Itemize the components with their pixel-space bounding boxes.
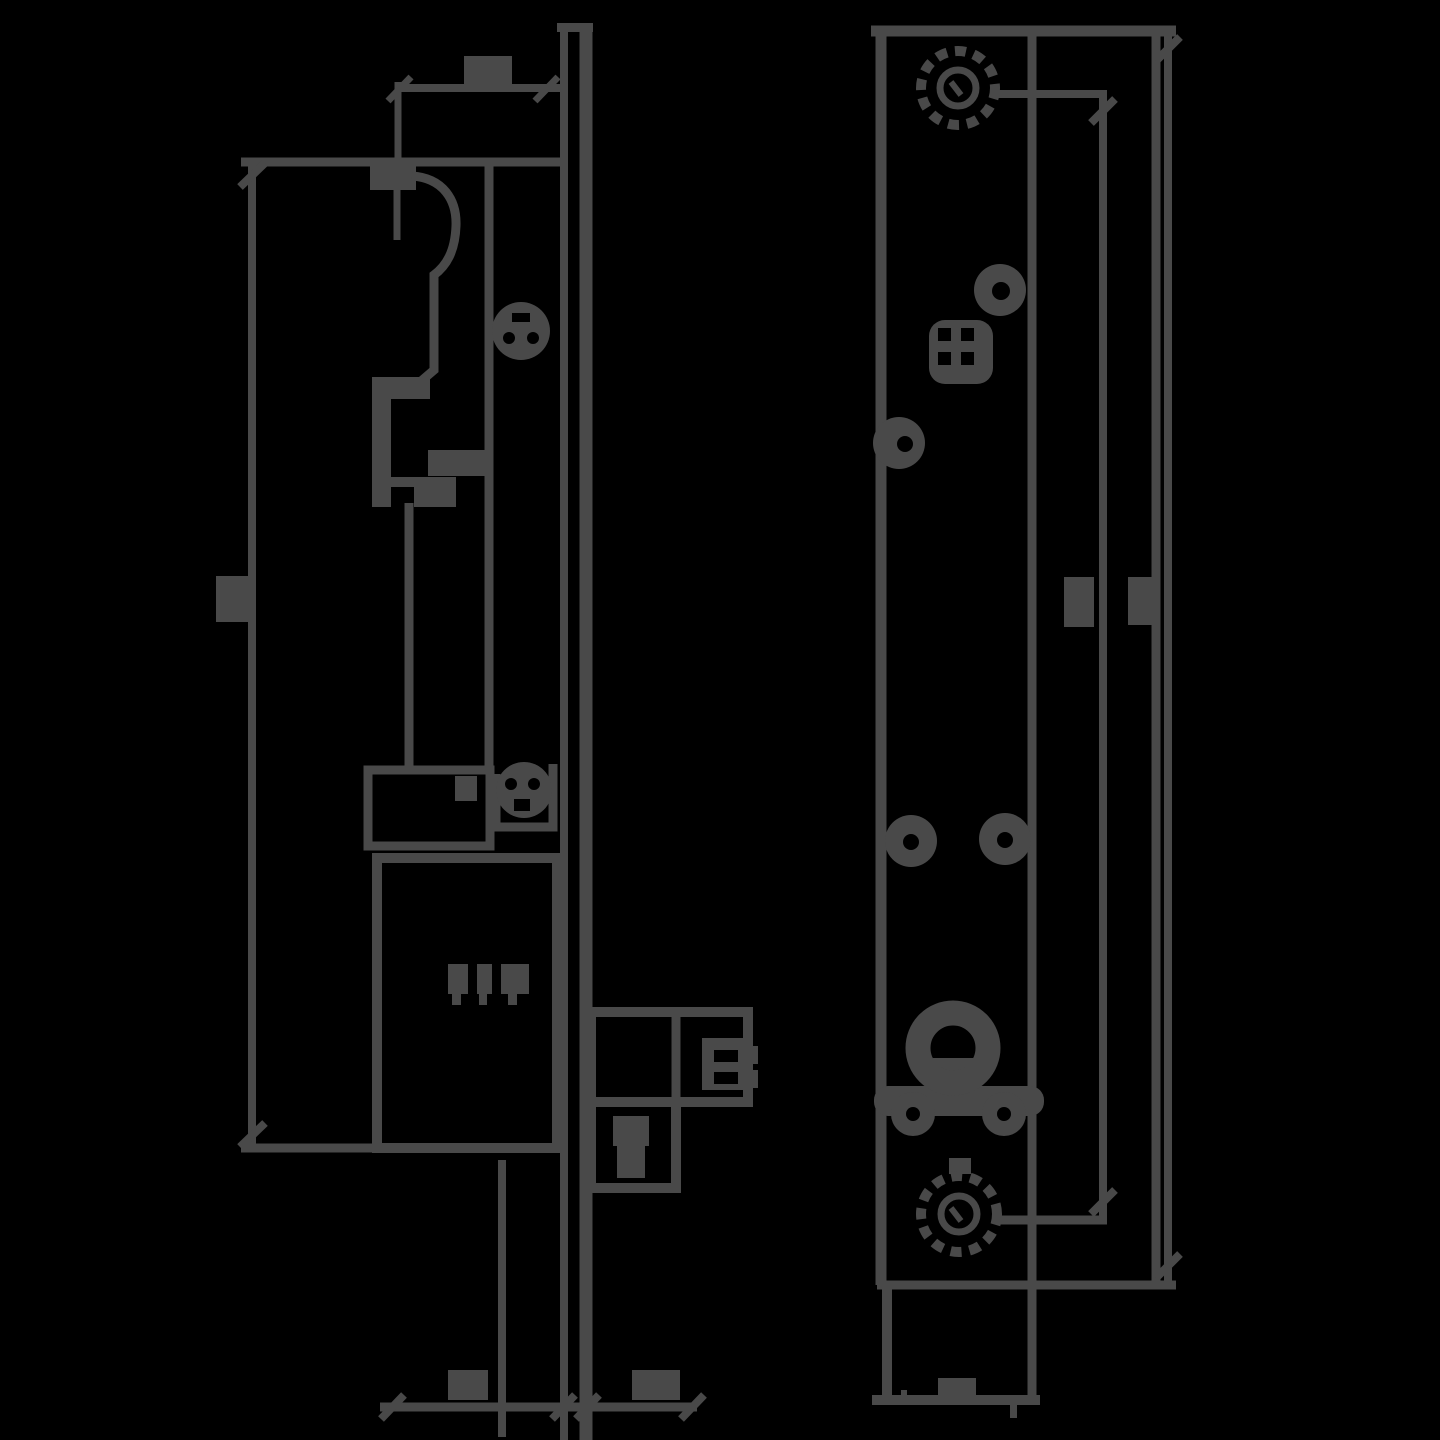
terminal-slot-1 xyxy=(714,1050,738,1062)
marking-glyph-2 xyxy=(477,964,492,994)
side-screw-top-eye-left xyxy=(503,332,515,344)
marking-glyph-1 xyxy=(448,964,468,994)
marking-glyph-2-stem xyxy=(479,994,487,1005)
strike-lock-drawing xyxy=(0,0,1440,1440)
knurled-screw-top xyxy=(921,51,995,125)
pad-hole-1 xyxy=(938,328,951,341)
cam-hole-ring xyxy=(918,1013,988,1083)
side-screw-mid-eye-left xyxy=(505,778,517,790)
cam-hole-cluster xyxy=(874,1013,1044,1136)
faceplate-top-cap xyxy=(557,23,593,32)
technical-drawing-canvas xyxy=(0,0,1440,1440)
side-section-view xyxy=(216,23,758,1440)
knurled-screw-bottom xyxy=(921,1158,997,1252)
front-view xyxy=(871,31,1180,1418)
pad-hole-4 xyxy=(961,352,974,365)
cable-grommet-tab xyxy=(613,1116,649,1146)
cam-pivot-block xyxy=(370,159,416,190)
marking-glyph-3-stem xyxy=(508,994,517,1005)
knurled-screw-top-mark xyxy=(951,82,961,95)
latch-cam-arc xyxy=(412,176,456,382)
cluster-screw-right-center xyxy=(997,1107,1011,1121)
cluster-screw-left-center xyxy=(906,1107,920,1121)
side-screw-mid-slot xyxy=(514,799,530,811)
four-hole-adjustment-pad xyxy=(929,320,993,384)
terminal-slot-2 xyxy=(714,1072,738,1084)
pad-hole-2 xyxy=(961,328,974,341)
terminal-pin-2 xyxy=(748,1070,758,1088)
connector-assembly xyxy=(591,1012,758,1188)
knurled-screw-bottom-mark xyxy=(951,1208,961,1221)
hole-upper-right-center xyxy=(992,282,1010,300)
upper-body-inner-block xyxy=(455,776,477,801)
lower-body-cable-bump xyxy=(938,1378,976,1400)
height-dimension-label-blob xyxy=(216,576,248,622)
hole-left-edge-center xyxy=(897,436,913,452)
bottom-dim-label-right-blob xyxy=(632,1370,680,1400)
lower-body-tick xyxy=(901,1390,907,1401)
bottom-dim-label-left-blob xyxy=(448,1370,488,1400)
solenoid-body-box xyxy=(377,858,557,1148)
keeper-step-bar xyxy=(428,450,490,476)
pad-hole-3 xyxy=(938,352,951,365)
hole-mid-left-center xyxy=(903,834,919,850)
cable-grommet-stem xyxy=(617,1146,645,1178)
side-screw-top-eye-right xyxy=(527,332,539,344)
faceplate-height-label-blob xyxy=(1128,577,1160,625)
side-screw-top-slot xyxy=(512,313,530,322)
lower-body-bottom-tick xyxy=(1010,1402,1017,1418)
side-screw-top xyxy=(492,302,550,360)
terminal-pin-1 xyxy=(748,1046,758,1064)
screw-distance-label-blob xyxy=(1064,577,1094,627)
body-marking-blobs xyxy=(448,964,529,1005)
top-width-label-blob xyxy=(464,56,512,84)
marking-glyph-1-stem xyxy=(452,994,461,1005)
marking-glyph-3 xyxy=(501,964,529,994)
side-screw-mid-eye-right xyxy=(528,778,540,790)
hole-mid-right-center xyxy=(997,832,1013,848)
